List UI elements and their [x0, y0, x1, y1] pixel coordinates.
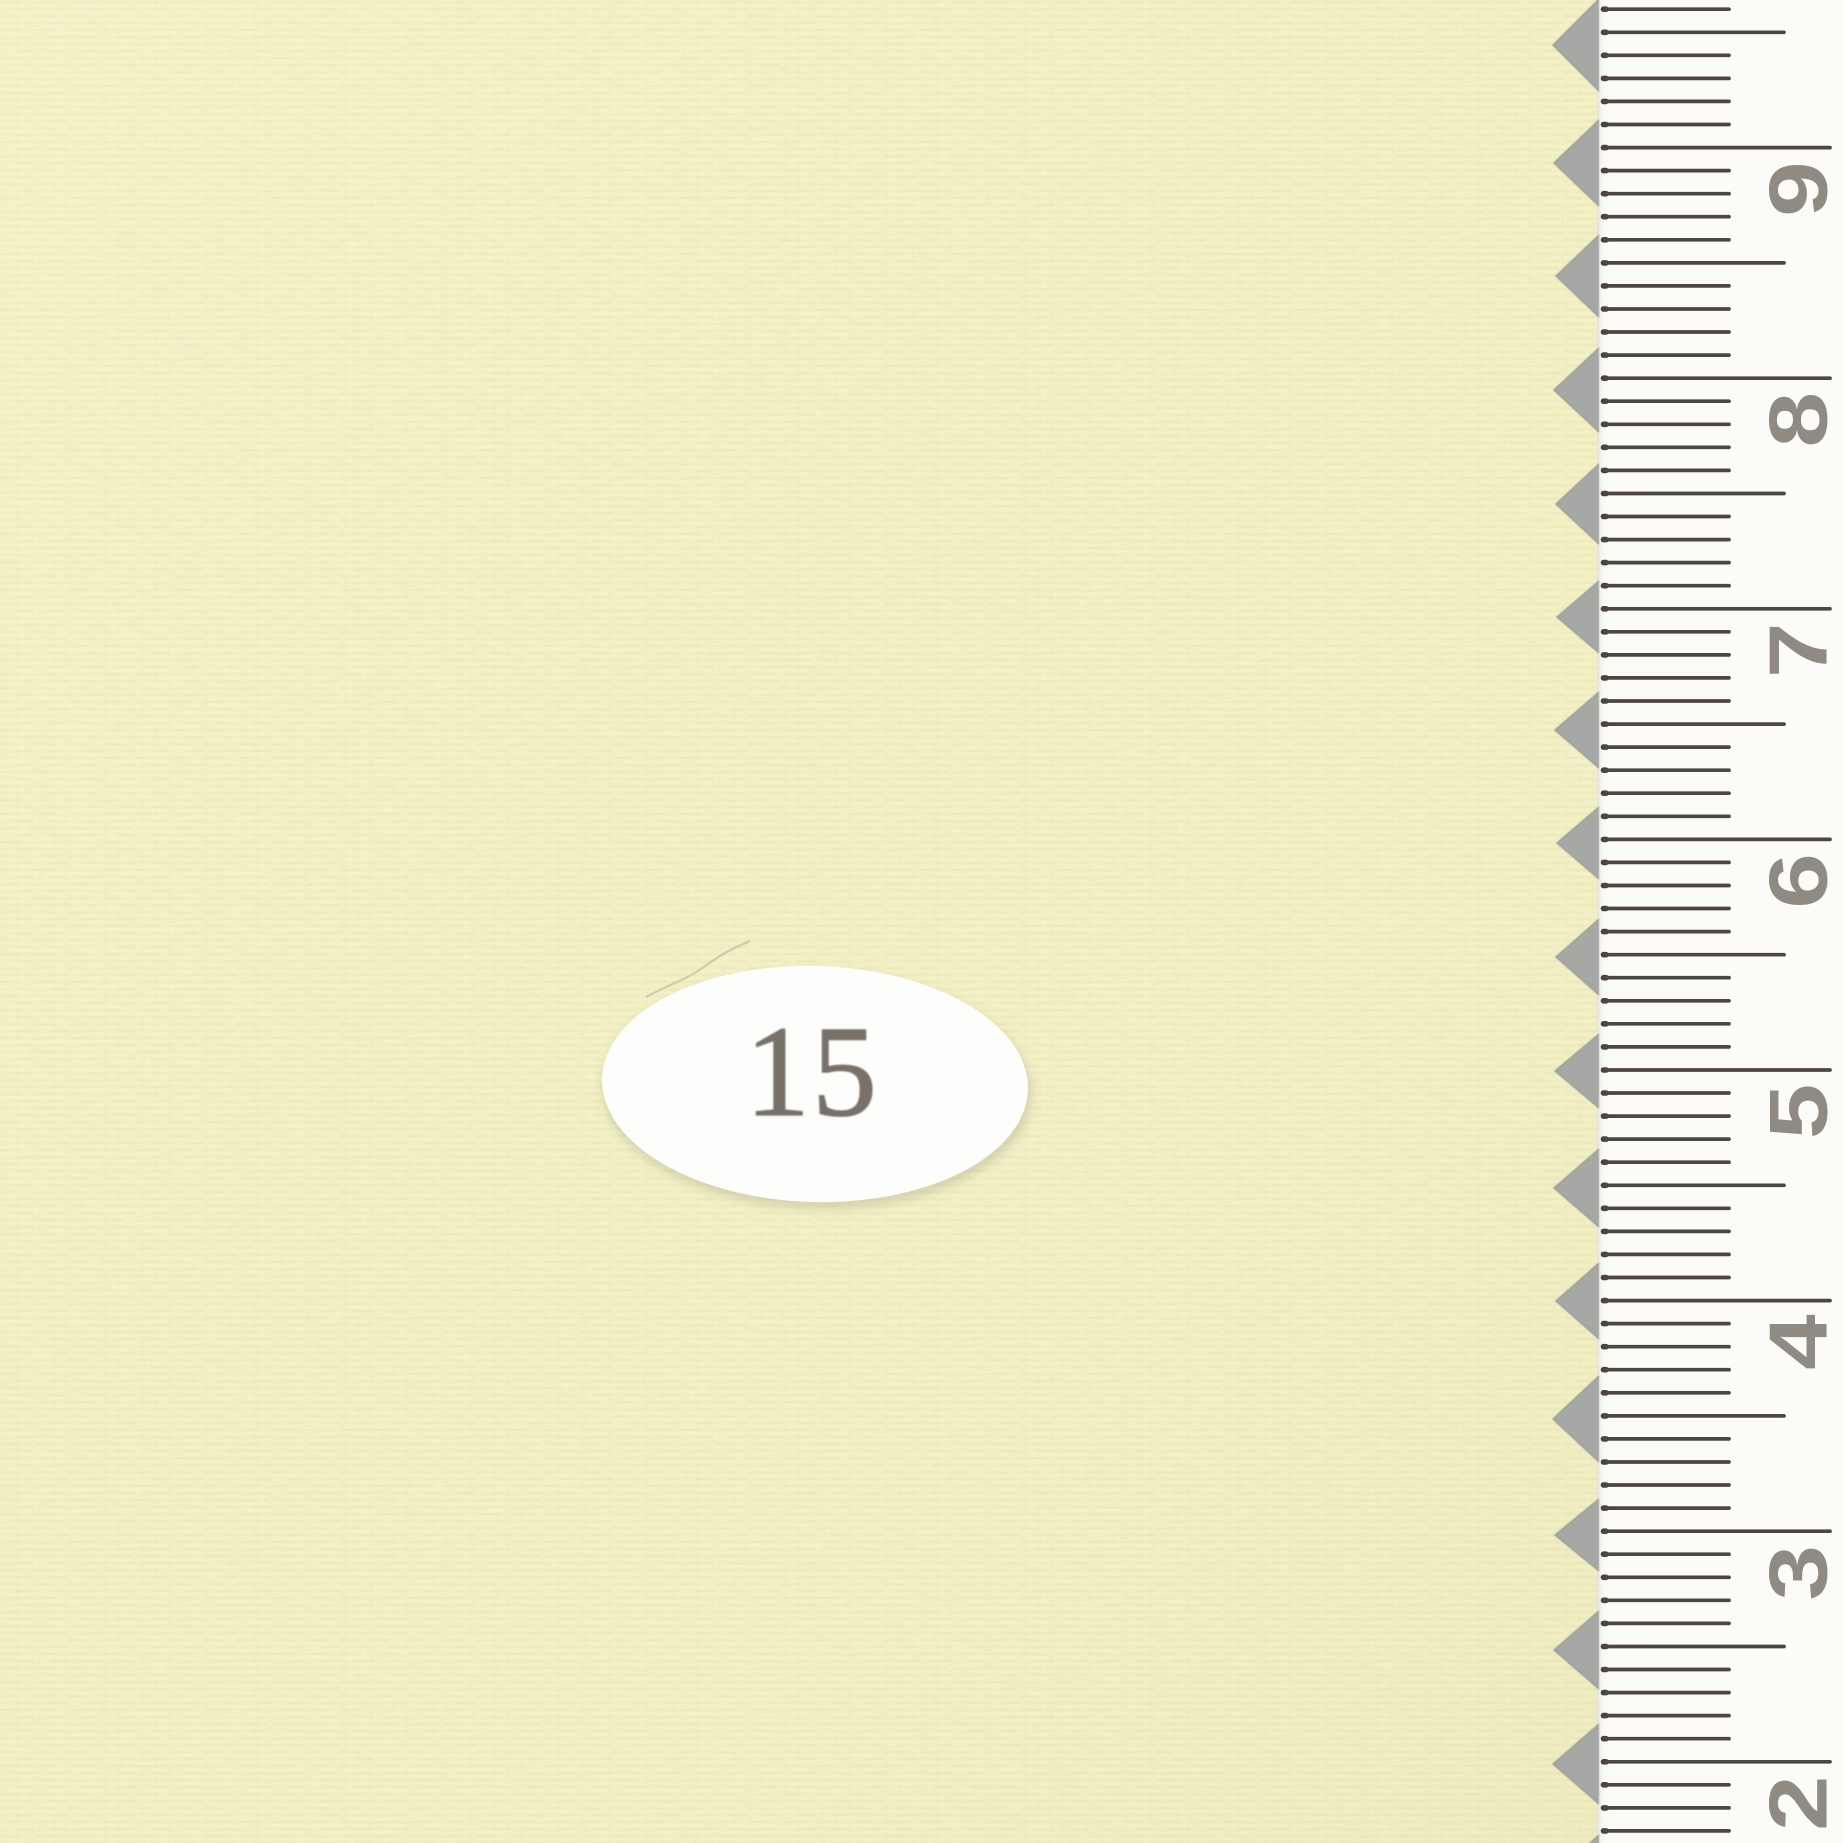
- svg-text:3: 3: [1752, 1545, 1843, 1601]
- svg-text:2: 2: [1752, 1776, 1843, 1832]
- svg-text:6: 6: [1752, 853, 1843, 909]
- svg-text:5: 5: [1752, 1084, 1843, 1140]
- svg-text:4: 4: [1752, 1314, 1843, 1370]
- svg-text:8: 8: [1752, 392, 1843, 448]
- svg-text:15: 15: [745, 1000, 879, 1144]
- svg-text:9: 9: [1752, 161, 1843, 217]
- svg-text:7: 7: [1752, 623, 1843, 679]
